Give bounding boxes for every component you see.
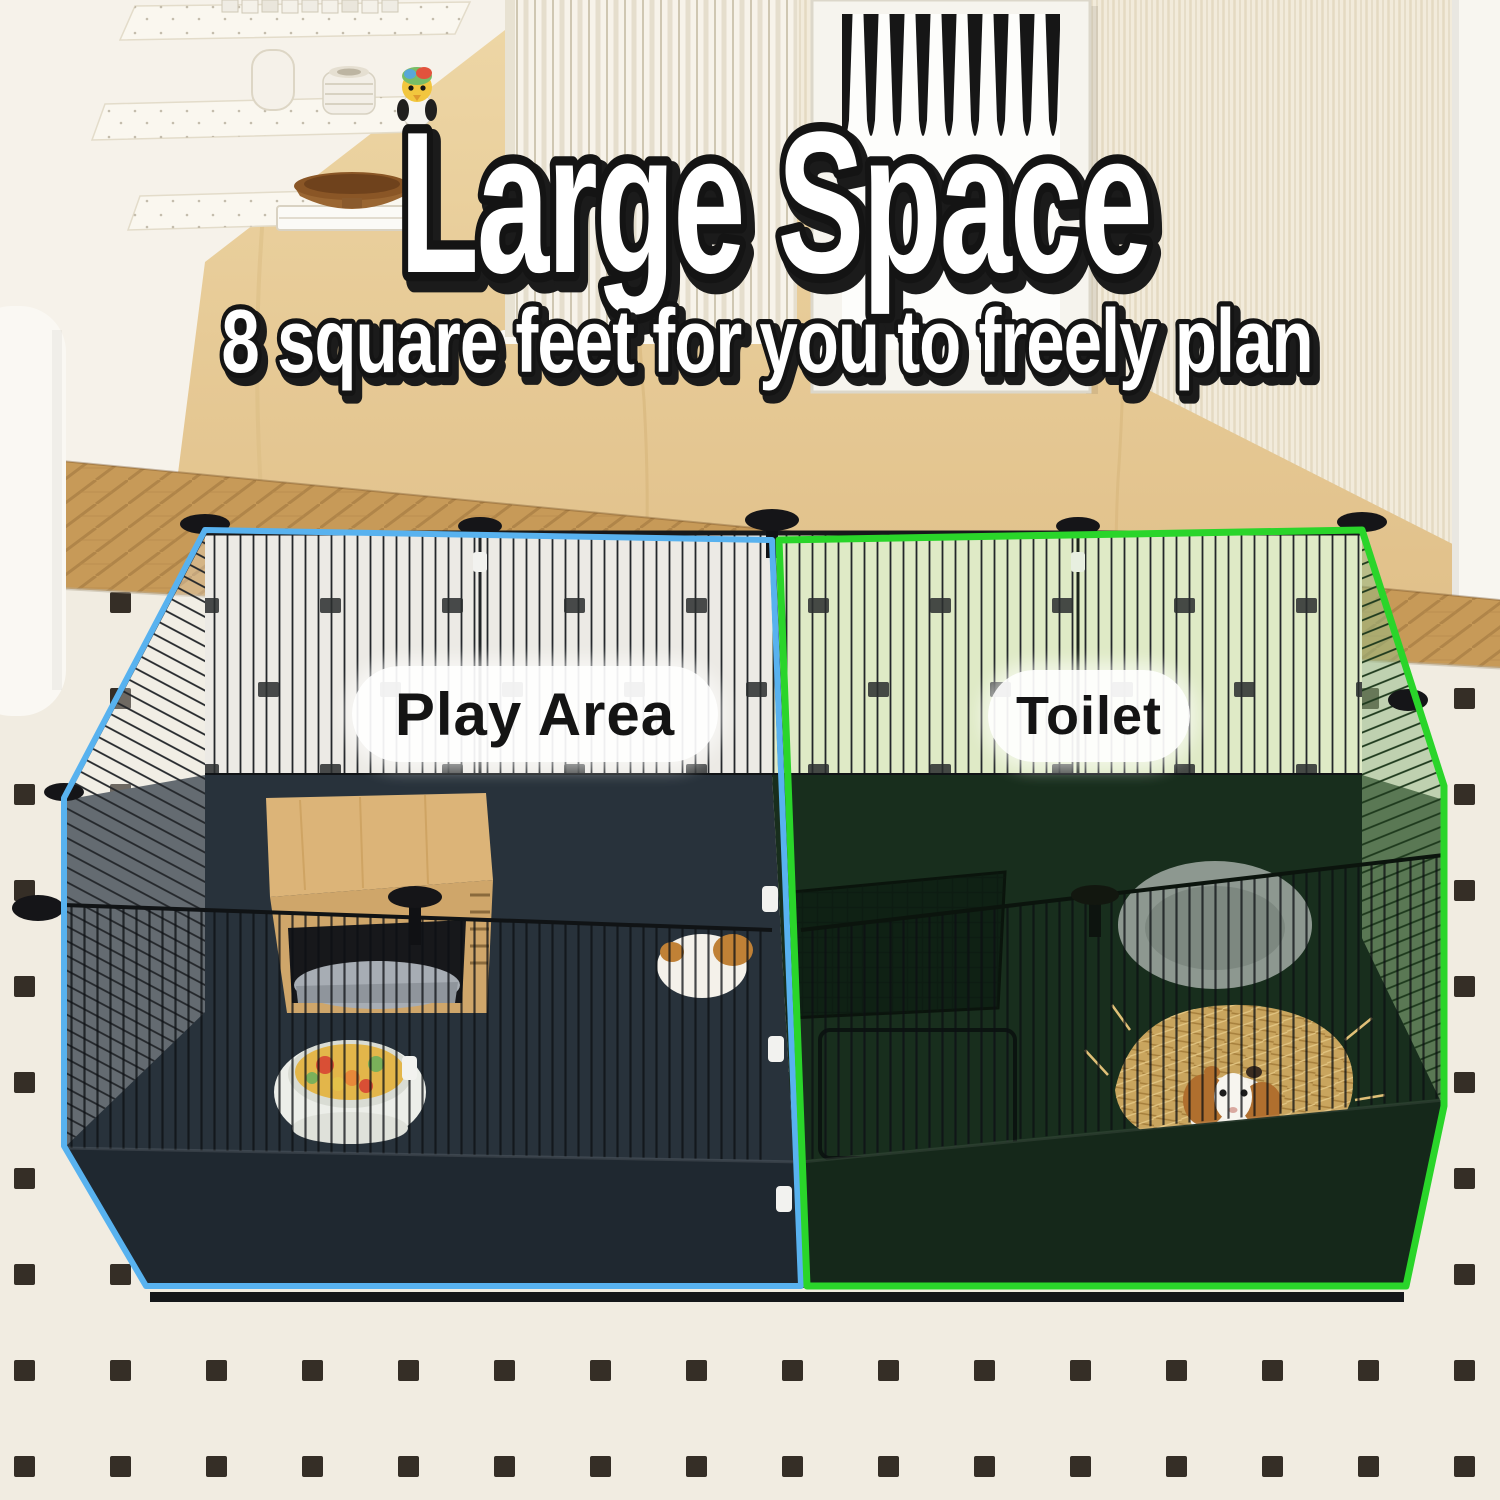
product-image: Large Space Large Space 8 square feet fo… — [0, 0, 1500, 1500]
floor-lamp — [0, 306, 66, 716]
pet-playpen — [12, 509, 1444, 1297]
ribbed-vase — [323, 66, 375, 114]
books-row — [222, 0, 398, 13]
scene-svg: Large Space Large Space 8 square feet fo… — [0, 0, 1500, 1500]
page-title: Large Space — [399, 90, 1150, 315]
toilet-label: Toilet — [988, 670, 1190, 762]
page-subtitle: 8 square feet for you to freely plan — [221, 291, 1312, 391]
play-area-label: Play Area — [352, 666, 718, 762]
tall-vase — [252, 50, 294, 110]
